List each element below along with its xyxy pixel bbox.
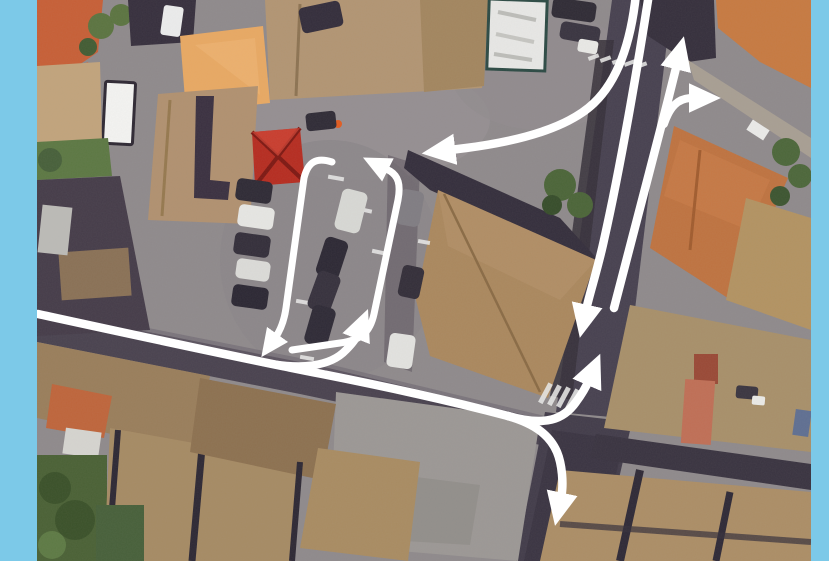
annotated-aerial-screenshot: { "scene": { "type": "aerial-satellite-p… (0, 0, 829, 561)
aerial-photo (37, 0, 811, 561)
photo-grain (37, 0, 811, 561)
aerial-photo-svg (37, 0, 811, 561)
